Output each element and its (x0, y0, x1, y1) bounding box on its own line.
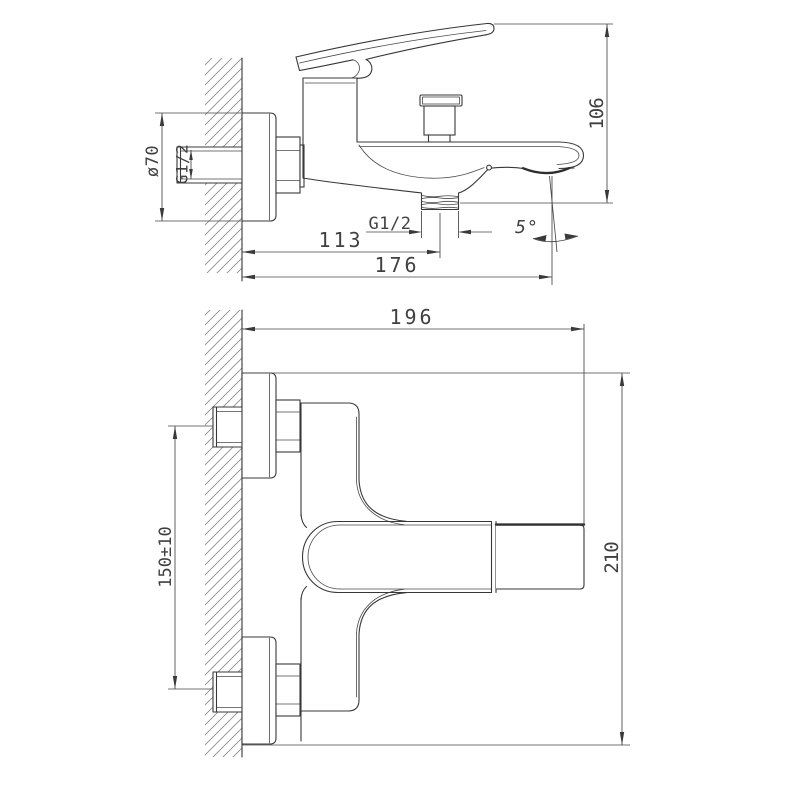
spout-body-plan (303, 522, 497, 593)
dim-inlet-thread-label: G1/2 (173, 144, 192, 185)
side-view: G1/2 ø70 (143, 23, 613, 285)
lever-handle (296, 23, 494, 78)
dim-flange-diameter-label: ø70 (143, 145, 163, 177)
hex-nut (276, 137, 304, 193)
faucet-installation-drawing: G1/2 ø70 (0, 0, 800, 800)
inlet-eccentric-bottom (213, 672, 242, 712)
dim-overall-height-label: 106 (586, 98, 608, 130)
dim-overall-width-label: 210 (601, 542, 623, 574)
dim-inlet-spacing-label: 150±10 (156, 526, 176, 587)
dim-outlet-thread-label: G1/2 (369, 214, 412, 234)
shower-outlet-thread (422, 193, 459, 210)
dim-wall-to-shower-outlet-label: 113 (318, 228, 363, 252)
mixer-body-plan (301, 403, 406, 741)
hex-nut-top (276, 400, 300, 452)
dim-overall-height: 106 (460, 24, 613, 203)
technical-drawing-page: G1/2 ø70 (0, 0, 800, 800)
dim-spout-angle: 5° (515, 176, 578, 252)
dim-spout-angle-label: 5° (515, 217, 539, 238)
hex-nut-bottom (276, 664, 300, 716)
plan-view: 196 150±10 210 (156, 305, 630, 757)
inlet-eccentric-top (213, 407, 242, 447)
dim-inlet-thread: G1/2 (173, 144, 193, 185)
spout-tip-plan (496, 525, 584, 589)
mounting-flange-top (242, 373, 276, 478)
dim-wall-to-spout-outlet-label: 176 (374, 253, 419, 277)
dim-spout-projection-label: 196 (389, 305, 434, 329)
mounting-flange (242, 113, 276, 221)
diverter-knob (420, 95, 462, 142)
mounting-flange-bottom (242, 637, 276, 744)
dim-inlet-spacing: 150±10 (156, 426, 213, 689)
